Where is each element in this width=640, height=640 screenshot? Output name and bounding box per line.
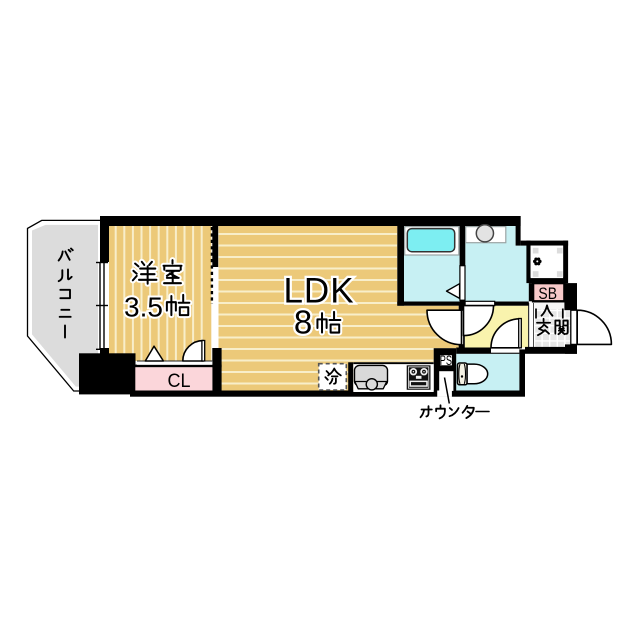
svg-text:CL: CL: [168, 370, 191, 392]
svg-text:SB: SB: [538, 285, 557, 303]
svg-text:8: 8: [294, 304, 312, 341]
svg-text:PS: PS: [440, 353, 452, 368]
svg-text:3.5: 3.5: [124, 292, 163, 323]
